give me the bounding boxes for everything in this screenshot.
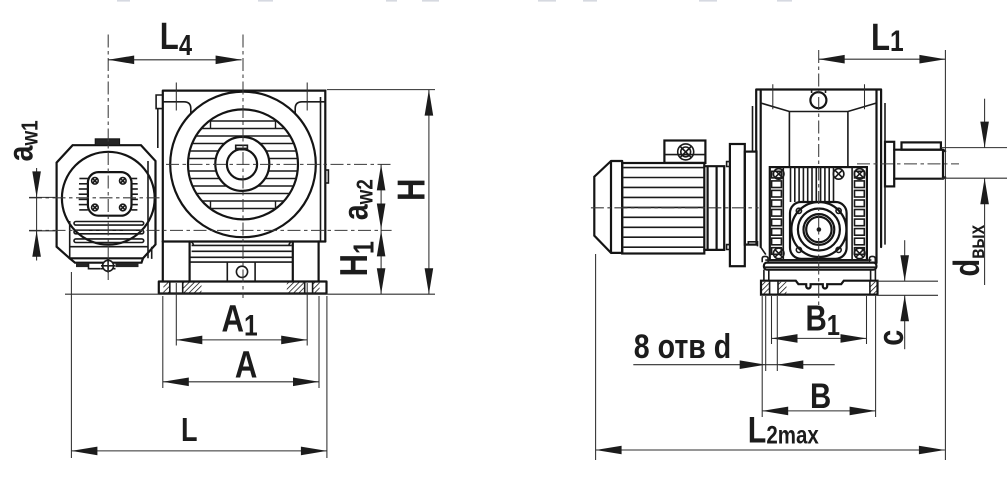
svg-text:L1: L1 — [871, 17, 904, 59]
svg-text:H: H — [390, 178, 433, 201]
svg-text:A: A — [235, 345, 258, 387]
svg-text:B: B — [810, 376, 831, 415]
svg-text:L: L — [181, 413, 198, 449]
svg-text:8 отв d: 8 отв d — [634, 328, 731, 366]
